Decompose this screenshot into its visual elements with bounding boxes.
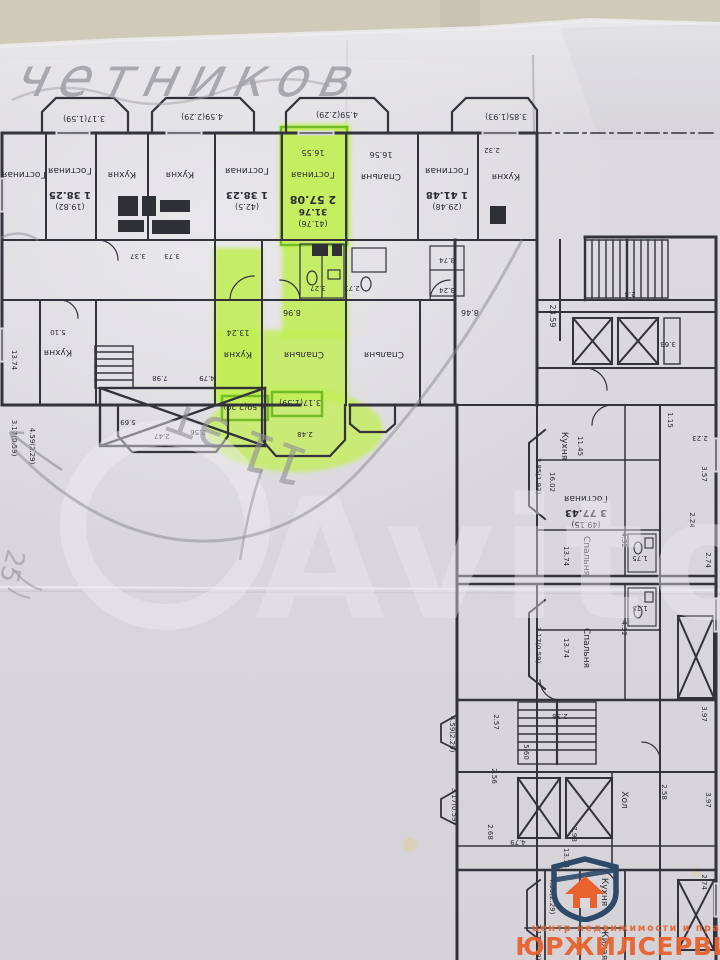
plan-label: 2.57 <box>492 714 500 730</box>
plan-label: Спальня <box>284 349 324 359</box>
plan-label: 1 38.23 <box>226 189 268 200</box>
plan-label: 4.59(2.29) <box>548 878 556 915</box>
plan-label: 2.32 <box>484 146 500 154</box>
plan-label: 3.27 <box>310 284 326 292</box>
plan-label: 2.68 <box>486 824 494 840</box>
tape-shadow <box>533 55 534 133</box>
plan-label: 2.74 <box>700 874 708 890</box>
plan-label: 3.17(0.59) <box>534 924 542 960</box>
plan-label: 5.10 <box>50 328 66 336</box>
plan-label: 3.73 <box>164 252 180 260</box>
plan-label: 7.98 <box>152 374 168 382</box>
plan-label: 4.59(2.29) <box>181 112 223 121</box>
plan-label: 16.56 <box>370 150 393 159</box>
plan-label: 3.97 <box>700 706 708 722</box>
plan-label: Хол <box>619 791 629 808</box>
plan-label: 1 41.48 <box>426 189 468 200</box>
plan-label: 31.76 <box>299 206 327 216</box>
plan-label: 3.85(1.93) <box>485 112 527 121</box>
floor-plan-photo-svg: 3.17(1.59)4.59(2.29)4.59(2.29)3.85(1.93)… <box>0 0 720 960</box>
plan-label: 4.79 <box>510 838 526 846</box>
plan-label: 2 57.08 <box>290 193 336 206</box>
plan-label: Гостиная <box>425 165 469 175</box>
plan-label: Кухня <box>108 169 136 179</box>
plan-label: 8.46 <box>461 308 479 317</box>
plan-label: (42.5) <box>235 202 259 211</box>
plan-label: Кухня <box>44 347 72 357</box>
plan-label: (41.76) <box>298 219 327 228</box>
plan-label: Кухня <box>166 169 194 179</box>
plan-label: 4.79 <box>199 374 215 382</box>
plan-label: (29.48) <box>432 202 461 211</box>
plan-label: 23.59 <box>548 305 557 328</box>
plan-label: 2.4 <box>624 290 636 298</box>
plan-label: 1 38.25 <box>49 189 91 200</box>
plan-label: 7.98 <box>570 826 578 842</box>
plan-label: Гостиная <box>225 165 269 175</box>
plan-label: 3.97 <box>704 792 712 808</box>
photo-of-floor-plan: 3.17(1.59)4.59(2.29)4.59(2.29)3.85(1.93)… <box>0 0 720 960</box>
plan-label: 3.17(1.59) <box>63 114 105 123</box>
plan-label: 3.17(1.59) <box>279 398 321 407</box>
plan-label: 3.17(0.59) <box>450 788 458 825</box>
plan-label: Гостиная <box>2 169 46 179</box>
plan-label: 11.45 <box>576 436 584 456</box>
plan-label: 3.74 <box>439 256 455 264</box>
plan-label: 2.73 <box>344 284 360 292</box>
plan-label: 2.23 <box>692 434 708 442</box>
plan-label: (19.82) <box>55 202 84 211</box>
plan-label: 4.59(2.29) <box>316 110 358 119</box>
plan-label: 13.24 <box>227 328 250 337</box>
plan-label: Гостиная <box>48 165 92 175</box>
plan-label: 2.38 <box>552 712 568 720</box>
plan-label: 4.59(2.29) <box>448 716 456 753</box>
plan-label: 2.56 <box>490 768 498 784</box>
plan-label: Кухня <box>599 878 609 906</box>
plan-label: Гостиная <box>291 169 335 179</box>
plan-label: 3.63 <box>660 340 676 348</box>
plan-label: 3.24 <box>439 286 455 294</box>
plan-label: Спальня <box>364 349 404 359</box>
plan-label: 13.74 <box>10 350 18 371</box>
plan-label: Спальня <box>361 171 401 181</box>
paper-stain <box>403 838 417 852</box>
plan-label: 1.15 <box>666 412 674 428</box>
watermark-text: Avito <box>255 462 720 658</box>
plan-label: Жилая <box>599 928 609 960</box>
plan-label: 13.74 <box>562 848 570 869</box>
plan-label: 5.60 <box>522 744 530 760</box>
plan-label: 8.96 <box>283 308 301 317</box>
plan-label: 3.37 <box>130 252 146 260</box>
plan-label: Кухня <box>224 349 252 359</box>
plan-label: Кухня <box>492 171 520 181</box>
plan-label: 16.55 <box>302 148 325 157</box>
plan-label: Кухня <box>559 432 569 460</box>
plan-label: 5.69 <box>120 418 136 426</box>
plan-label: 2.58 <box>660 784 668 800</box>
